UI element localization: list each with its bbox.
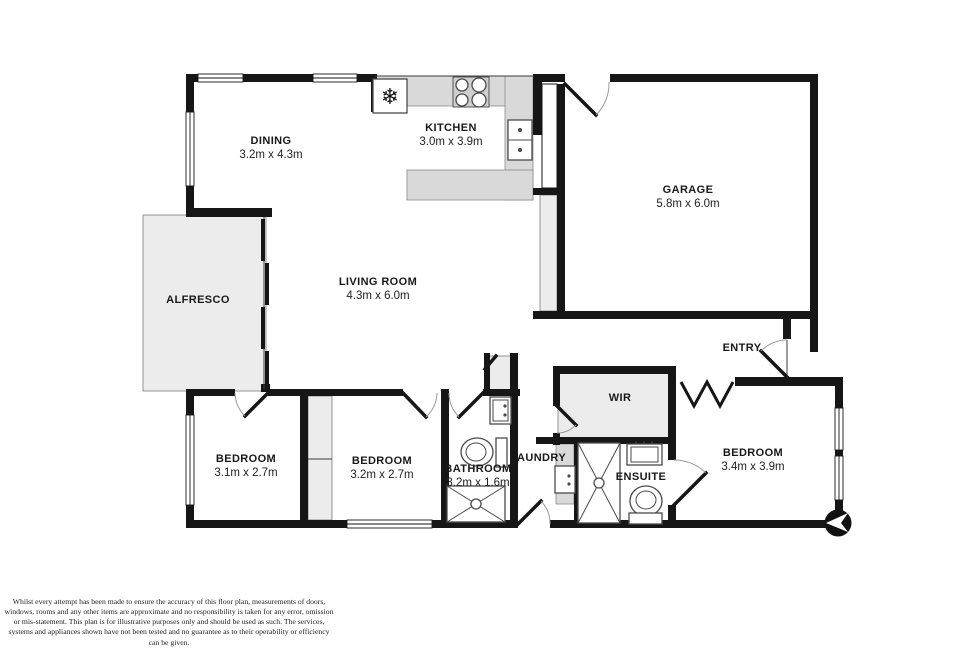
label-bathroom: BATHROOM xyxy=(444,463,511,475)
label-wir: WIR xyxy=(609,392,632,404)
entry-door xyxy=(761,340,787,377)
ensuite-vanity-basin-icon xyxy=(627,441,662,465)
bathroom-shower-icon xyxy=(447,486,505,522)
label-laundry: LAUNDRY xyxy=(510,452,566,464)
label-bedroom-1: BEDROOM xyxy=(216,453,276,465)
dims-dining: 3.2m x 4.3m xyxy=(239,149,302,161)
disclaimer-text: Whilst every attempt has been made to en… xyxy=(4,597,334,648)
ensuite-toilet-icon xyxy=(629,486,662,524)
compass-north-icon xyxy=(825,510,852,537)
label-ensuite: ENSUITE xyxy=(616,471,666,483)
bathroom-vanity-basin-icon xyxy=(490,397,511,424)
label-garage: GARAGE xyxy=(663,184,714,196)
garage-side-door xyxy=(565,82,609,115)
bedroom3-bifold-door xyxy=(681,382,733,406)
laundry-door xyxy=(518,501,550,524)
label-bedroom-2: BEDROOM xyxy=(352,455,412,467)
dims-bedroom-2: 3.2m x 2.7m xyxy=(350,469,413,481)
floor-plan-page: ❄ xyxy=(0,0,974,650)
dims-bathroom: 3.2m x 1.6m xyxy=(446,477,509,489)
label-kitchen: KITCHEN xyxy=(425,122,477,134)
wir-area xyxy=(558,372,670,438)
bathroom-door xyxy=(449,393,483,417)
svg-text:❄: ❄ xyxy=(381,85,399,110)
laundry-tub-icon xyxy=(555,466,575,493)
bedroom1-door xyxy=(235,393,268,416)
dims-garage: 5.8m x 6.0m xyxy=(656,198,719,210)
linen-cupboard xyxy=(540,195,557,311)
label-living-room: LIVING ROOM xyxy=(339,276,417,288)
label-bedroom-3: BEDROOM xyxy=(723,447,783,459)
label-alfresco: ALFRESCO xyxy=(166,294,230,306)
robe-column xyxy=(308,396,332,520)
label-entry: ENTRY xyxy=(723,342,762,354)
kitchen-sink-icon xyxy=(508,120,532,160)
dims-bedroom-3: 3.4m x 3.9m xyxy=(721,461,784,473)
dims-bedroom-1: 3.1m x 2.7m xyxy=(214,467,277,479)
fridge-snowflake-icon: ❄ xyxy=(373,79,407,113)
dims-living-room: 4.3m x 6.0m xyxy=(346,290,409,302)
pantry-cupboard xyxy=(542,84,557,188)
bedroom2-door xyxy=(403,393,437,417)
ensuite-shower-icon xyxy=(578,443,620,523)
dims-kitchen: 3.0m x 3.9m xyxy=(419,136,482,148)
stove-burners-icon xyxy=(453,77,489,107)
floor-plan-drawing: ❄ xyxy=(0,0,974,650)
ensuite-door xyxy=(674,460,706,505)
label-dining: DINING xyxy=(251,135,292,147)
